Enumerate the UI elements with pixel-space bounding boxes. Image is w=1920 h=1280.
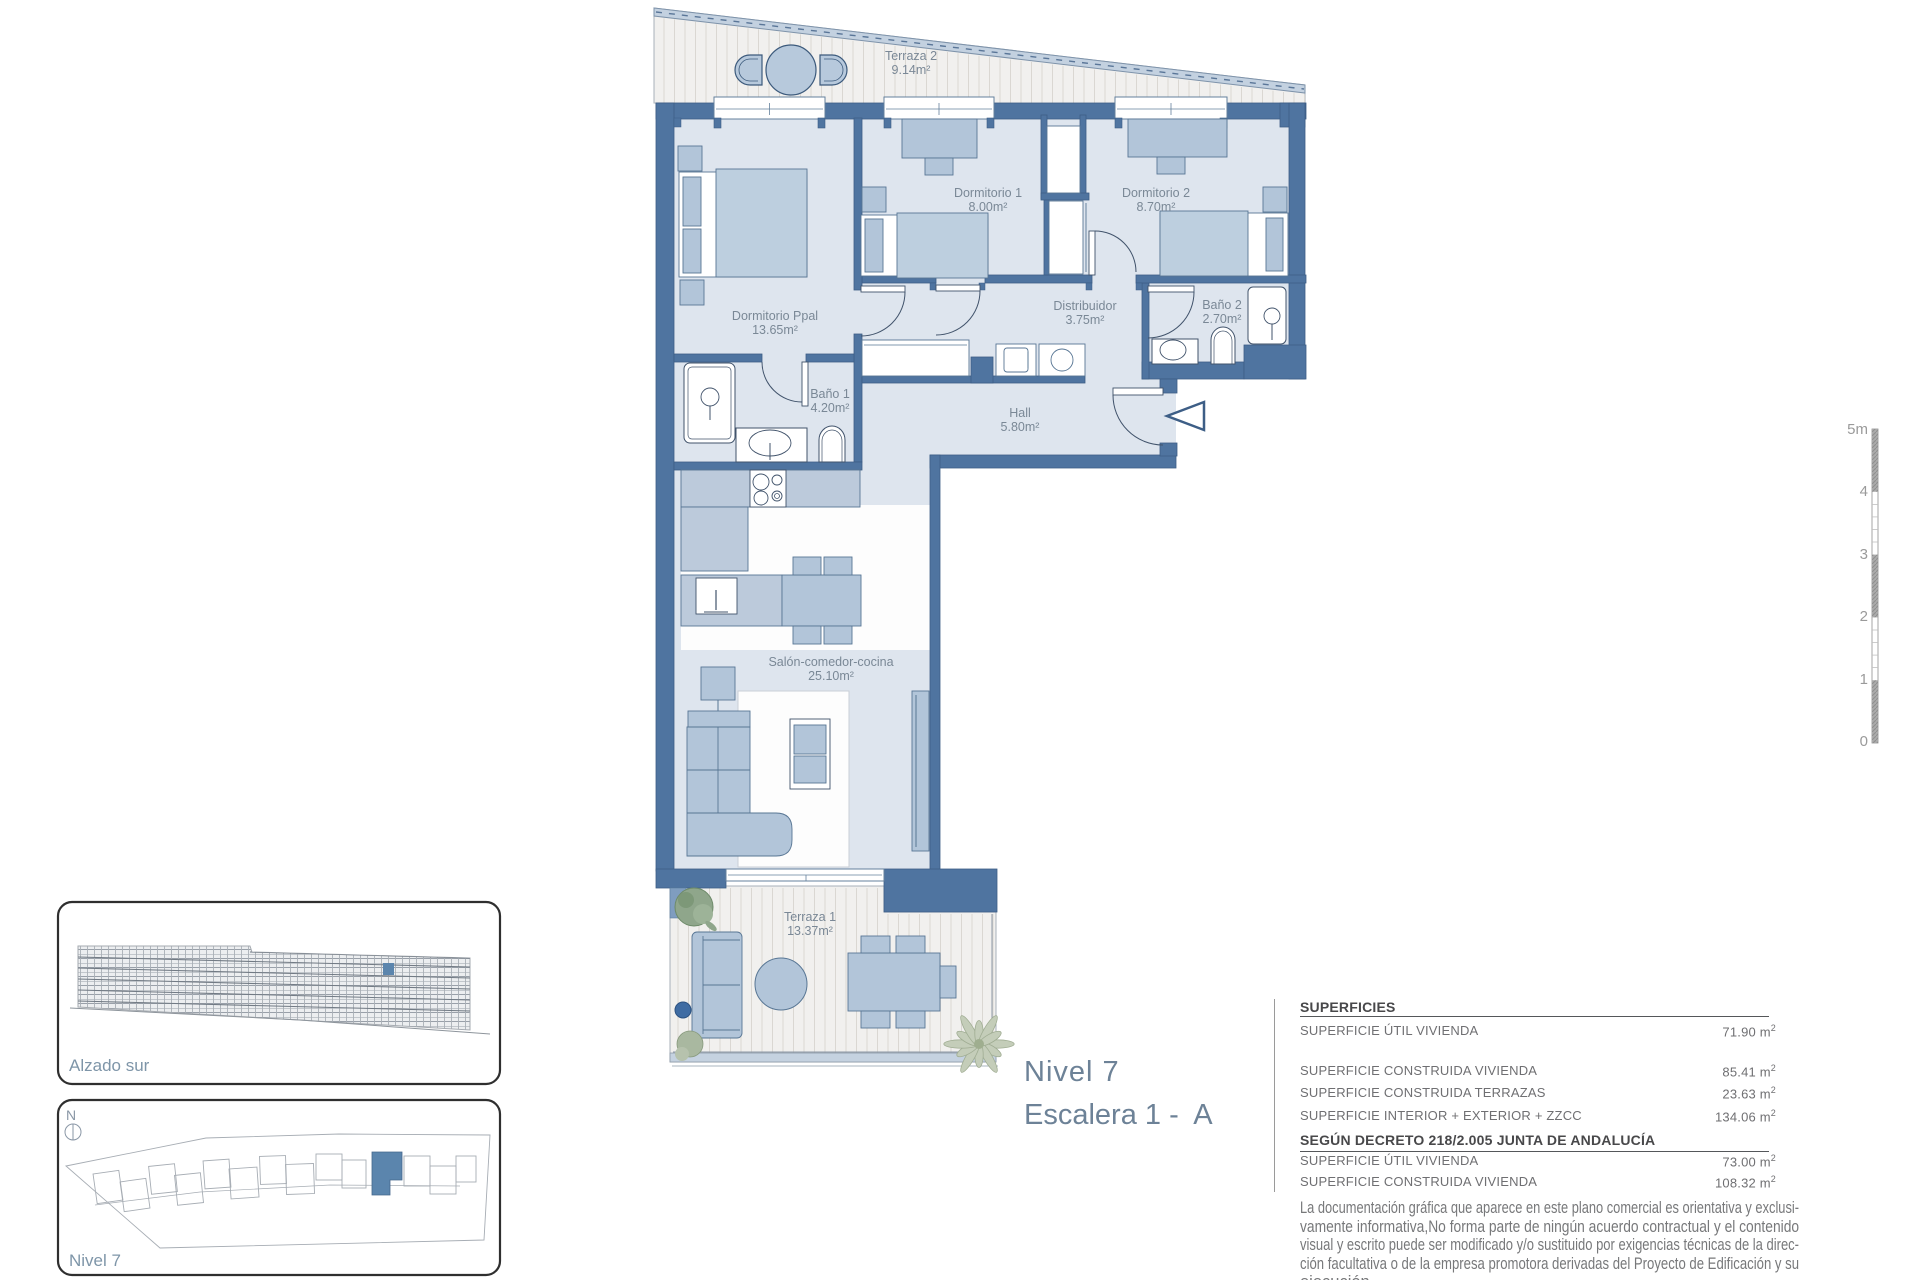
svg-text:13.37m²: 13.37m² <box>787 924 833 938</box>
svg-text:9.14m²: 9.14m² <box>892 63 931 77</box>
svg-text:2.70m²: 2.70m² <box>1203 312 1242 326</box>
svg-text:0: 0 <box>1860 733 1868 750</box>
svg-text:4: 4 <box>1860 483 1868 500</box>
svg-text:Terraza 1: Terraza 1 <box>784 910 836 924</box>
svg-text:Alzado sur: Alzado sur <box>69 1056 150 1075</box>
svg-text:5m: 5m <box>1847 421 1868 438</box>
svg-text:8.70m²: 8.70m² <box>1137 200 1176 214</box>
svg-text:25.10m²: 25.10m² <box>808 669 854 683</box>
svg-text:13.65m²: 13.65m² <box>752 323 798 337</box>
svg-text:Hall: Hall <box>1009 406 1031 420</box>
svg-text:2: 2 <box>1860 608 1868 625</box>
svg-text:Baño 2: Baño 2 <box>1202 298 1242 312</box>
svg-text:Dormitorio Ppal: Dormitorio Ppal <box>732 309 818 323</box>
svg-text:5.80m²: 5.80m² <box>1001 420 1040 434</box>
svg-text:1: 1 <box>1860 671 1868 688</box>
svg-text:Nivel 7: Nivel 7 <box>69 1251 121 1270</box>
svg-text:Distribuidor: Distribuidor <box>1053 299 1116 313</box>
svg-text:3.75m²: 3.75m² <box>1066 313 1105 327</box>
svg-text:3: 3 <box>1860 546 1868 563</box>
svg-text:4.20m²: 4.20m² <box>811 401 850 415</box>
svg-text:Dormitorio 2: Dormitorio 2 <box>1122 186 1190 200</box>
svg-text:Salón-comedor-cocina: Salón-comedor-cocina <box>768 655 893 669</box>
svg-text:Dormitorio 1: Dormitorio 1 <box>954 186 1022 200</box>
svg-text:N: N <box>66 1107 76 1123</box>
svg-text:8.00m²: 8.00m² <box>969 200 1008 214</box>
svg-text:Terraza 2: Terraza 2 <box>885 49 937 63</box>
svg-text:Baño 1: Baño 1 <box>810 387 850 401</box>
